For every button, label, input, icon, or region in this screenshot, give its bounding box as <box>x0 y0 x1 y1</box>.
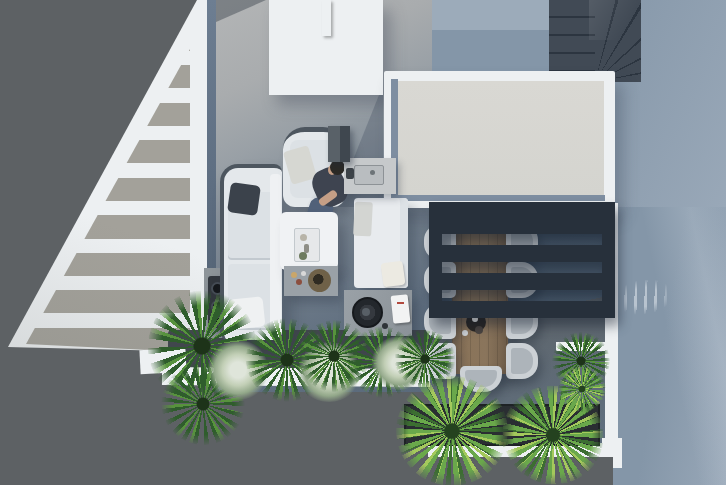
daybed <box>354 198 408 288</box>
dark-pillow <box>227 182 261 216</box>
daybed-towel <box>353 202 373 237</box>
cup <box>462 330 468 336</box>
palm-plant <box>396 376 508 485</box>
decor-bottle <box>300 234 307 241</box>
winder-staircase <box>549 0 641 82</box>
bbq-towel <box>391 294 411 324</box>
counter-item <box>346 168 354 179</box>
bowl <box>475 326 483 334</box>
cup <box>301 271 306 276</box>
towel-stripe <box>397 302 404 304</box>
chair-seat <box>511 348 533 374</box>
pergola-frame <box>602 202 615 318</box>
stair-divider-wall <box>322 0 331 36</box>
dining-chair <box>506 343 538 379</box>
coffee-table <box>280 212 338 270</box>
decor-plant <box>299 252 307 260</box>
skylight-shadow-bottom <box>391 195 605 201</box>
person-head <box>330 160 345 175</box>
side-table <box>284 266 338 296</box>
rooftop-terrace-render <box>0 0 726 485</box>
grill-knob <box>362 308 370 316</box>
bottle <box>291 272 297 278</box>
sink-faucet <box>370 170 375 175</box>
slatted-pergola <box>429 202 615 318</box>
pergola-frame <box>429 202 442 318</box>
skylight-panel <box>398 81 604 195</box>
wicker-bowl <box>308 269 331 292</box>
bottle <box>296 279 302 285</box>
pergola-frame <box>429 307 615 318</box>
pergola-frame <box>429 202 615 217</box>
wall-appliance <box>328 126 350 162</box>
sink-basin <box>354 165 384 185</box>
folded-towel <box>380 261 405 288</box>
stair-highlight <box>589 0 641 40</box>
pergola-slats <box>442 217 602 307</box>
outdoor-sink-counter <box>344 158 396 194</box>
